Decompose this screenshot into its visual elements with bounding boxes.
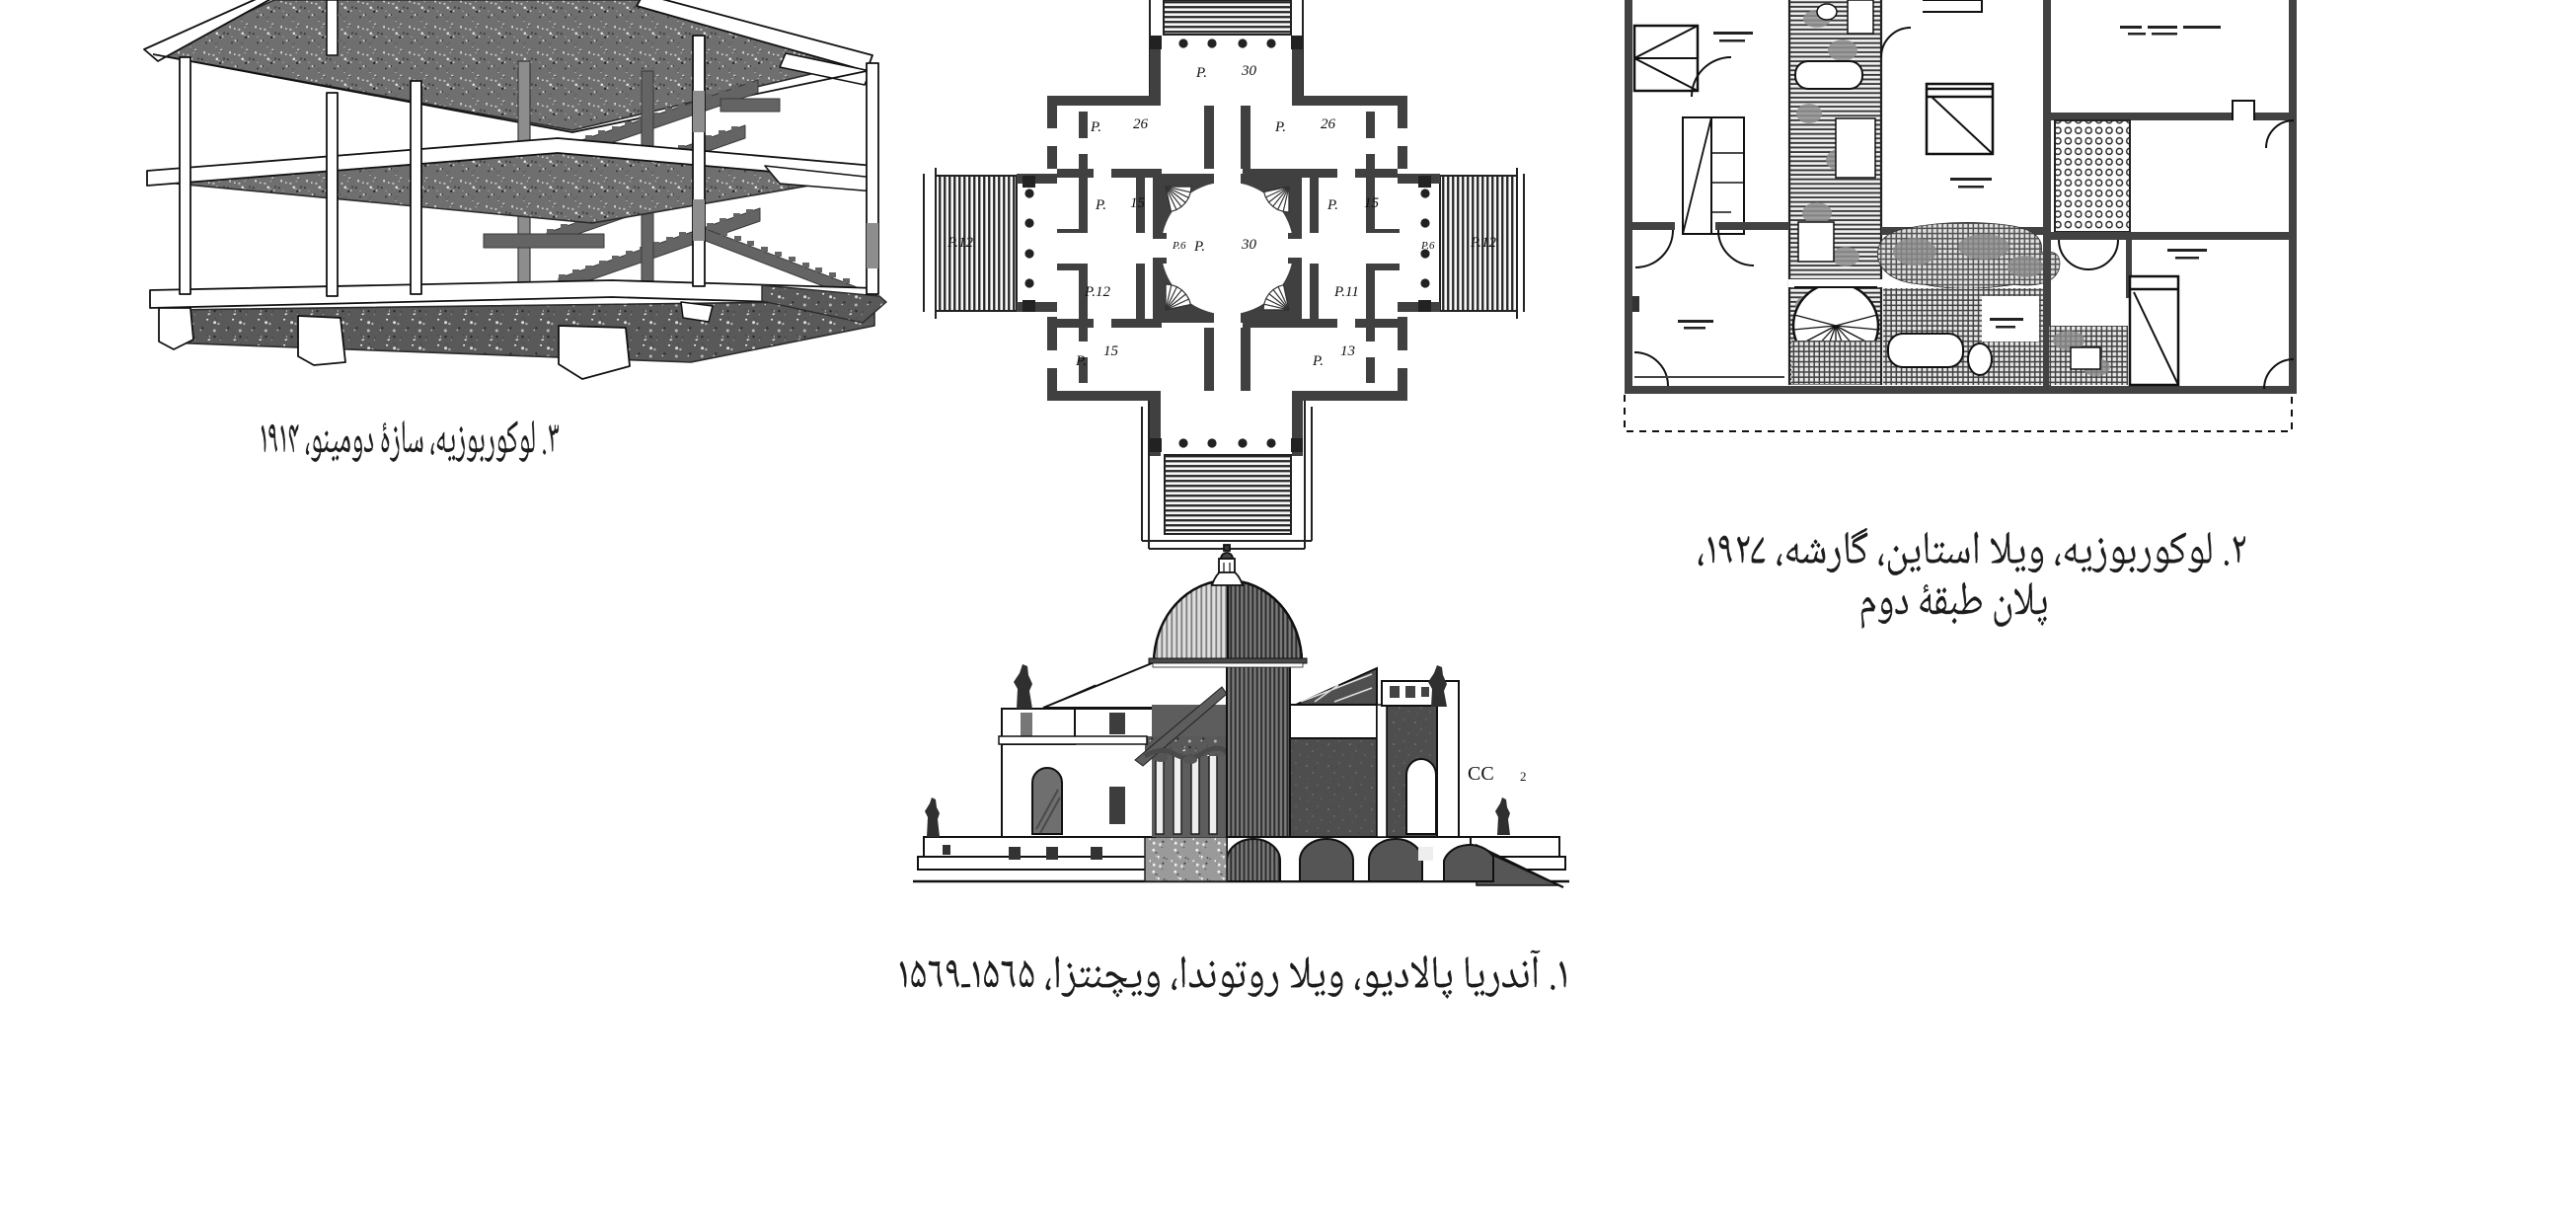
svg-text:P.: P. (1195, 65, 1207, 81)
svg-text:P.: P. (1312, 353, 1324, 369)
svg-text:P.6: P.6 (1172, 240, 1186, 252)
svg-text:P.: P. (1326, 197, 1338, 213)
svg-text:P.12: P.12 (947, 235, 973, 251)
svg-text:26: 26 (1133, 116, 1149, 132)
svg-text:P.12: P.12 (1470, 235, 1496, 251)
svg-text:P.: P. (1075, 353, 1087, 369)
svg-text:P.: P. (1274, 119, 1286, 135)
svg-text:P.: P. (1193, 239, 1205, 255)
svg-text:13: 13 (1340, 343, 1355, 359)
svg-text:15: 15 (1130, 195, 1146, 211)
svg-text:P.: P. (1090, 119, 1101, 135)
svg-text:P.6: P.6 (1420, 240, 1435, 252)
svg-text:30: 30 (1241, 237, 1257, 253)
svg-text:15: 15 (1364, 195, 1380, 211)
svg-text:P.11: P.11 (1333, 284, 1359, 300)
svg-text:15: 15 (1103, 343, 1119, 359)
svg-text:P.12: P.12 (1084, 284, 1110, 300)
svg-text:26: 26 (1321, 116, 1336, 132)
svg-text:P.: P. (1095, 197, 1106, 213)
svg-text:CC: CC (1468, 763, 1494, 785)
svg-text:30: 30 (1241, 63, 1257, 79)
svg-text:2: 2 (1520, 769, 1527, 784)
